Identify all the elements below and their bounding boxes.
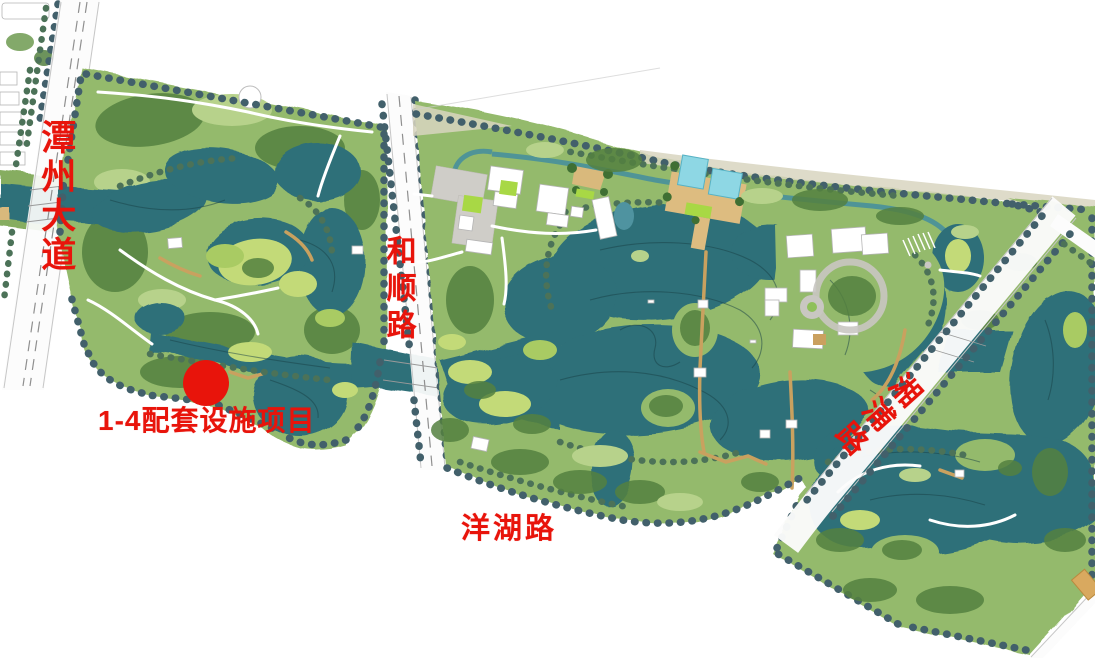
project-marker-dot xyxy=(183,360,229,406)
road-label-yanghu-road: 洋湖路 xyxy=(461,513,557,545)
project-marker-label: 1-4配套设施项目 xyxy=(98,405,315,436)
road-label-tanzhou-avenue: 潭州大道 xyxy=(36,119,75,275)
site-plan-map xyxy=(0,0,1095,658)
road-label-heshun-road: 和顺路 xyxy=(381,235,415,346)
park-master-plan: 潭州大道 和顺路 洋湖路 湘浦路 1-4配套设施项目 xyxy=(0,0,1095,658)
